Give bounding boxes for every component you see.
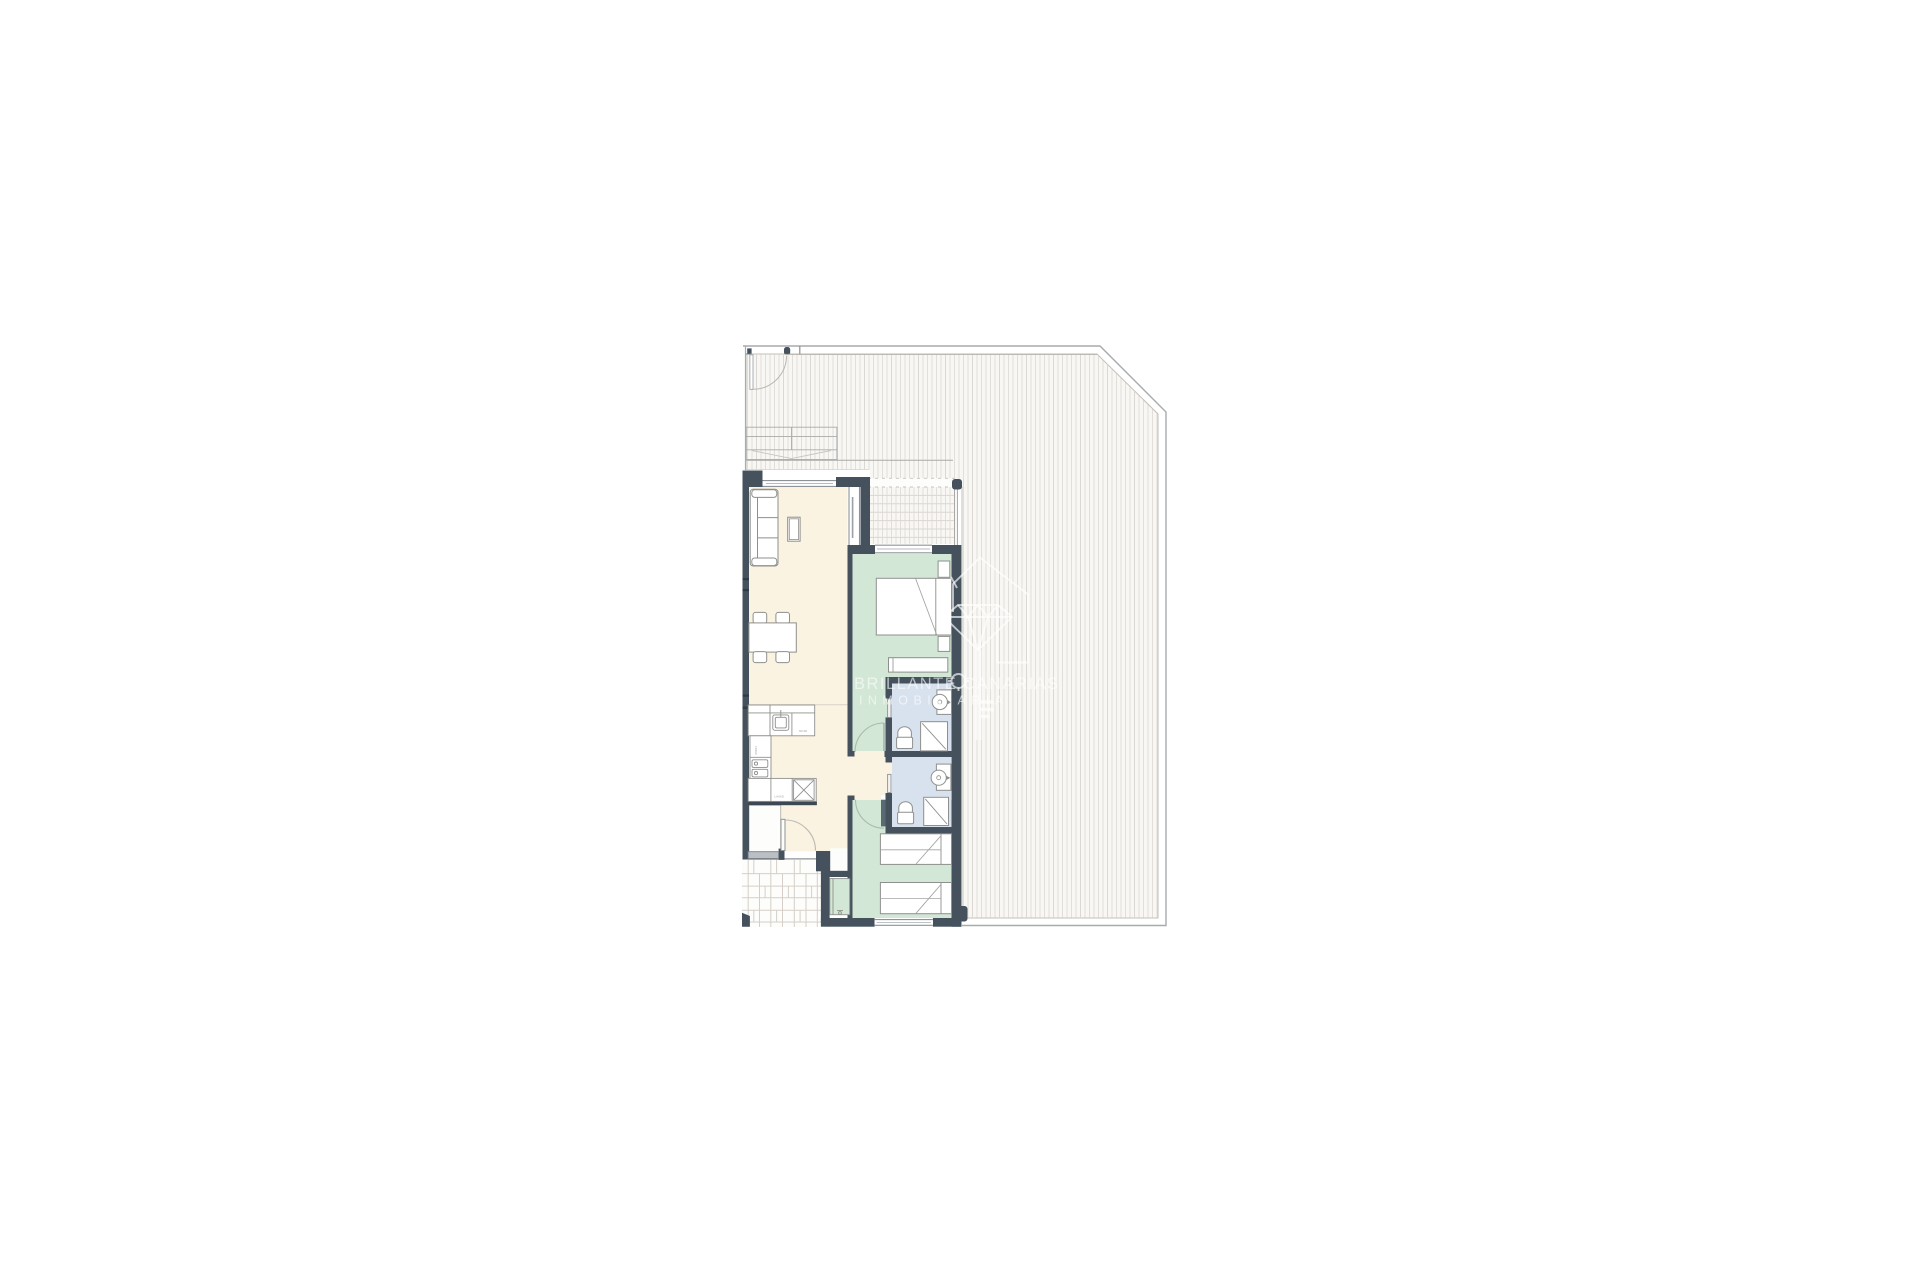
svg-text:FRIGO: FRIGO [754,746,758,756]
svg-text:60x60: 60x60 [799,729,808,733]
svg-text:BRILLANTE CANARIAS: BRILLANTE CANARIAS [854,675,1061,693]
svg-text:LAVAD.: LAVAD. [775,795,785,799]
